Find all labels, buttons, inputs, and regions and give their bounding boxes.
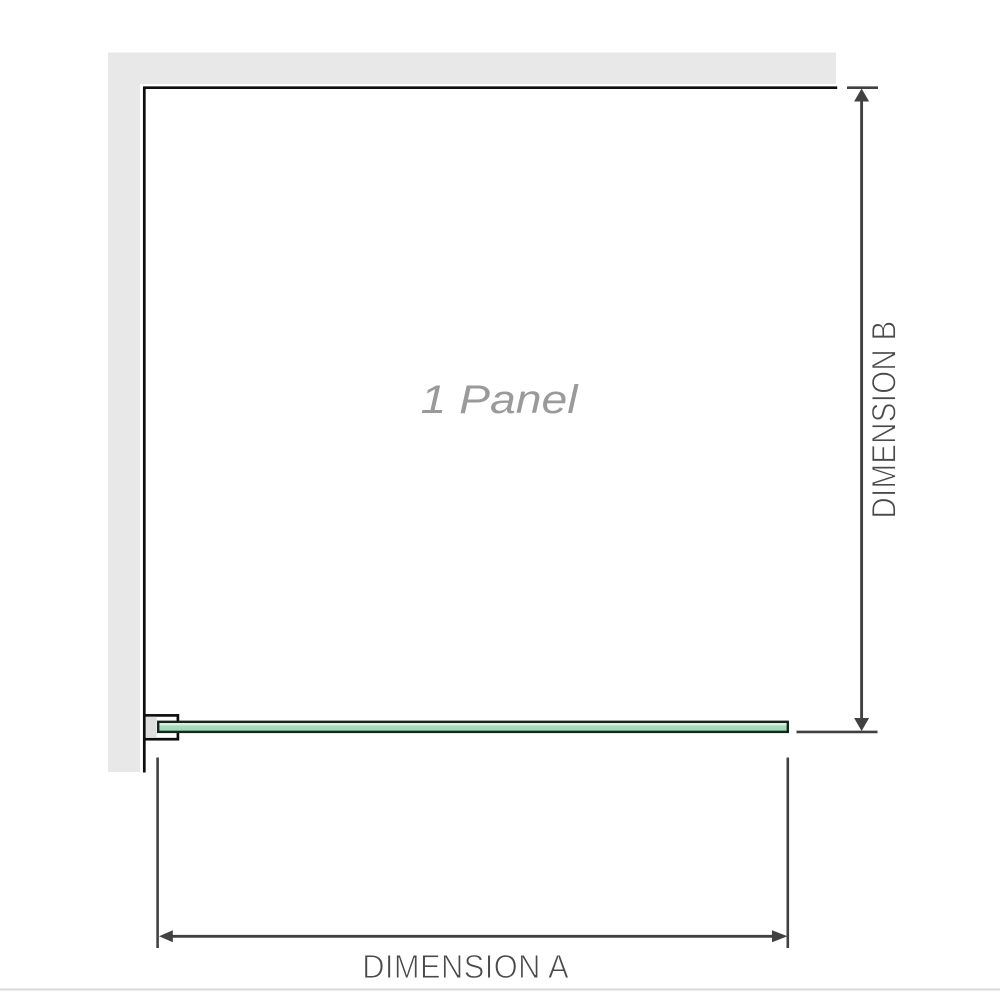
svg-text:1 Panel: 1 Panel (421, 378, 579, 422)
svg-text:DIMENSION A: DIMENSION A (362, 948, 569, 985)
svg-text:DIMENSION B: DIMENSION B (866, 321, 904, 519)
